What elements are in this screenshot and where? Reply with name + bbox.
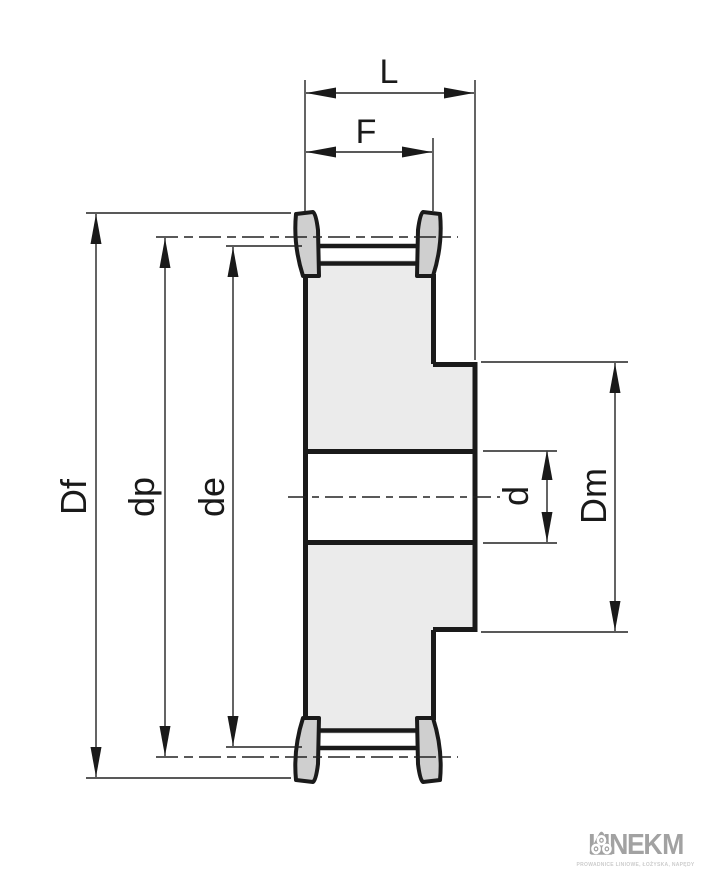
- linekom-logo-wordmark: LINEK M: [588, 831, 683, 860]
- dim-label-Dm: Dm: [576, 468, 612, 524]
- flange-bottom-left: [295, 718, 319, 782]
- drawing-canvas: L F Df dp de d Dm LINEK M PROWADNICE LIN…: [0, 0, 712, 881]
- dim-label-de: de: [194, 477, 230, 517]
- flange-bottom-right: [417, 718, 441, 782]
- flange-top-right: [417, 212, 441, 276]
- dim-label-F: F: [356, 115, 377, 149]
- dim-label-d: d: [498, 486, 534, 506]
- flange-top-left: [295, 212, 319, 276]
- dim-label-L: L: [380, 55, 399, 89]
- pulley-rollers-triangle-icon: [589, 831, 614, 856]
- dim-label-dp: dp: [124, 477, 160, 517]
- dim-label-Df: Df: [56, 479, 92, 515]
- logo-tagline: PROWADNICE LINIOWE, ŁOŻYSKA, NAPĘDY: [576, 862, 694, 868]
- logo-text-right: M: [662, 831, 683, 860]
- linekom-logo: LINEK M PROWADNICE LINIOWE, ŁOŻYSKA, NAP…: [563, 831, 708, 868]
